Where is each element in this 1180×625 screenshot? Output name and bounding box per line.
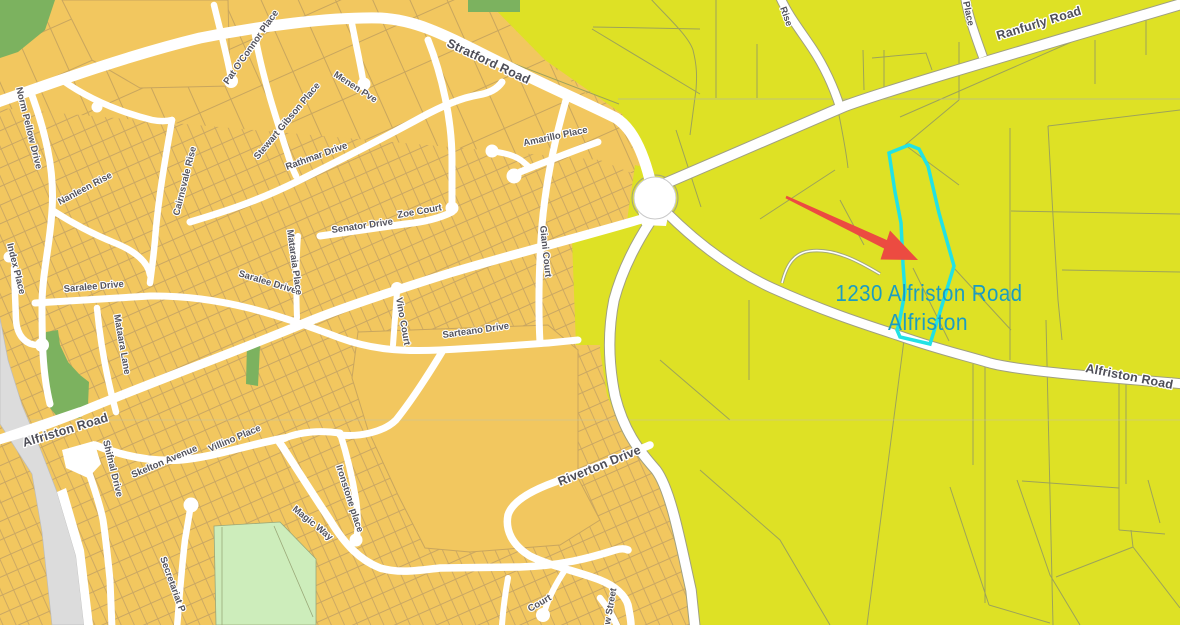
svg-text:1230 Alfriston Road: 1230 Alfriston Road [836,280,1023,306]
svg-text:Alfriston: Alfriston [888,309,968,335]
